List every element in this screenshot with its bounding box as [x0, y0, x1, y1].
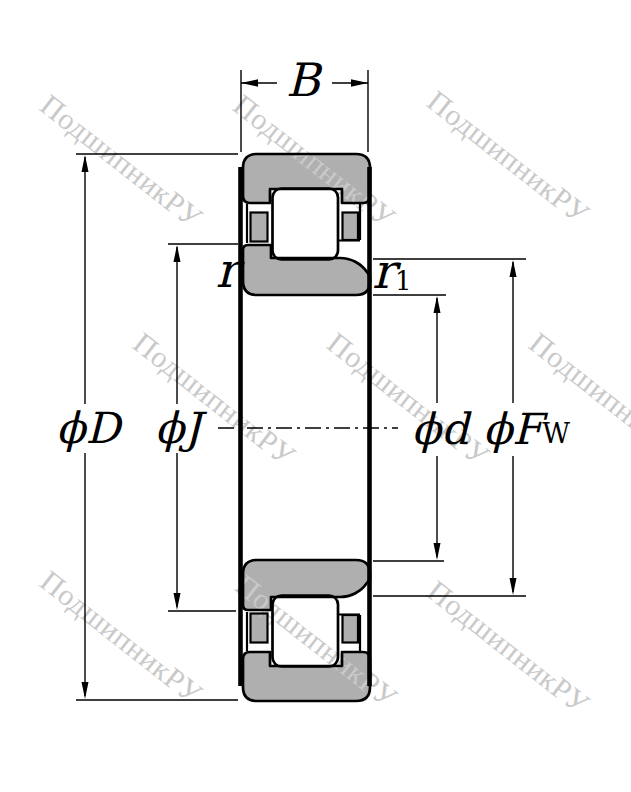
bearing-cross-section-drawing: ПодшипникРУ ПодшипникРУ ПодшипникРУ Подш… — [0, 0, 631, 792]
dim-label-phi-d: ϕd — [412, 404, 472, 454]
dim-label-B: B — [286, 53, 323, 107]
cage-bar — [251, 213, 268, 242]
dim-label-phi-D: ϕD — [56, 403, 123, 453]
bearing-drawing-page: ПодшипникРУ ПодшипникРУ ПодшипникРУ Подш… — [0, 0, 631, 792]
dim-label-phi-J: ϕJ — [155, 403, 208, 453]
dim-label-r1-subscript: 1 — [395, 266, 412, 296]
dim-label-phi-F-subscript: W — [542, 418, 570, 449]
cage-bar — [343, 615, 359, 643]
cage-bar — [343, 213, 359, 241]
dim-label-phi-F-main: ϕF — [483, 404, 548, 454]
roller — [273, 189, 339, 260]
